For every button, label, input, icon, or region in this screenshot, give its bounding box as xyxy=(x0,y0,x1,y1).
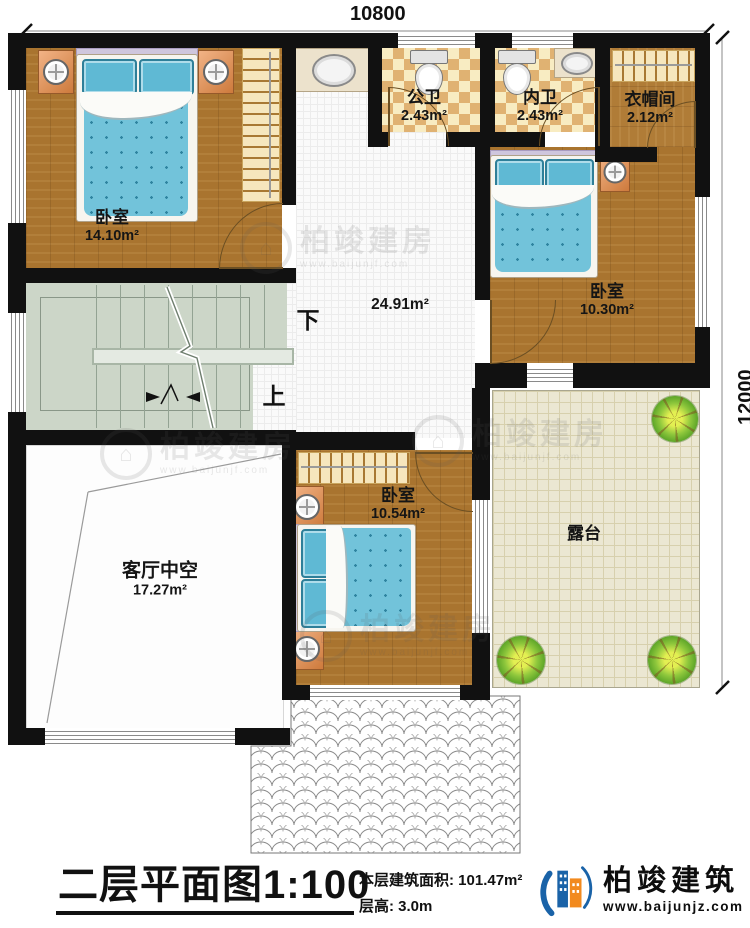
window xyxy=(8,90,26,223)
stair-handrail xyxy=(92,348,294,365)
floor-area-value: 101.47m² xyxy=(458,872,522,889)
room-area: 24.91m² xyxy=(371,296,429,314)
lamp-icon xyxy=(604,161,627,184)
window xyxy=(45,728,235,745)
window xyxy=(8,313,26,412)
sheet-title-text: 二层平面图 xyxy=(58,863,263,907)
tree-icon xyxy=(652,396,698,442)
bed-double xyxy=(292,524,414,630)
nightstand xyxy=(198,50,234,94)
stairs-down-label: 下 xyxy=(297,301,320,335)
window xyxy=(527,366,573,385)
room-name: 内卫 xyxy=(517,88,563,108)
room-area: 10.54m² xyxy=(371,505,425,522)
cloakroom-rail xyxy=(615,64,693,66)
toilet-tank-icon xyxy=(410,50,448,64)
wall xyxy=(480,33,495,147)
sheet-title: 二层平面图1:100 xyxy=(58,862,370,908)
wall xyxy=(282,33,296,205)
stair-treads-lower xyxy=(96,364,253,428)
pillow xyxy=(82,59,137,95)
room-label-bedroom1: 卧室 14.10m² xyxy=(85,208,139,244)
floor-area-stat: 本层建筑面积: 101.47m² xyxy=(359,869,522,890)
clothes-rack xyxy=(298,452,410,484)
room-area: 14.10m² xyxy=(85,227,139,244)
wall xyxy=(8,268,296,283)
room-name: 衣帽间 xyxy=(625,90,676,110)
window xyxy=(512,33,573,48)
lamp-icon xyxy=(294,636,320,662)
bed-sheet-fold xyxy=(326,526,348,628)
tree-icon xyxy=(648,636,696,684)
floor-area-label: 本层建筑面积: xyxy=(359,872,454,889)
room-label-bedroom2: 卧室 10.30m² xyxy=(580,282,634,318)
room-area: 2.12m² xyxy=(625,109,676,126)
room-area: 2.43m² xyxy=(517,107,563,124)
wall xyxy=(282,432,296,700)
stairs-up-label: 上 xyxy=(263,377,286,411)
room-label-inner-bath: 内卫 2.43m² xyxy=(517,88,563,124)
nightstand xyxy=(38,50,74,94)
room-label-bedroom3: 卧室 10.54m² xyxy=(371,486,425,522)
wall xyxy=(368,132,388,147)
room-area: 10.30m² xyxy=(580,301,634,318)
wall xyxy=(282,432,415,450)
dimension-top: 10800 xyxy=(345,3,411,26)
room-name: 公卫 xyxy=(401,88,447,108)
cloakroom-rack xyxy=(612,50,695,82)
room-label-cloakroom: 衣帽间 2.12m² xyxy=(625,90,676,126)
sink-icon xyxy=(561,52,593,75)
room-label-terrace: 露台 xyxy=(567,524,601,544)
lamp-icon xyxy=(294,494,320,520)
room-label-living-void: 客厅中空 17.27m² xyxy=(122,561,198,600)
window xyxy=(472,500,490,633)
clothes-rail xyxy=(301,466,407,468)
room-label-hall-area: 24.91m² xyxy=(371,296,429,314)
room-label-public-bath: 公卫 2.43m² xyxy=(401,88,447,124)
wall xyxy=(475,132,490,300)
brand-name: 柏竣建筑 xyxy=(603,867,739,896)
floor-plan-canvas: ⌂ 柏竣建房www.baijunjf.com ⌂ 柏竣建房www.baijunj… xyxy=(0,0,750,928)
tree-icon xyxy=(497,636,545,684)
floor-height-label: 层高: xyxy=(359,898,394,915)
room-name: 卧室 xyxy=(371,486,425,506)
brand-logo-icon xyxy=(538,861,596,919)
wall xyxy=(595,147,657,162)
title-underline xyxy=(56,911,354,915)
brand-website: www.baijunjz.com xyxy=(603,900,744,914)
brand-logo: 柏竣建筑 www.baijunjz.com xyxy=(538,861,744,919)
sheet-scale: 1:100 xyxy=(263,863,370,907)
wall xyxy=(573,363,710,388)
roof-tiles xyxy=(250,695,522,855)
window xyxy=(310,685,460,700)
stair-treads-upper xyxy=(96,285,287,349)
wardrobe-rack xyxy=(242,48,280,202)
room-area: 2.43m² xyxy=(401,107,447,124)
room-name: 卧室 xyxy=(85,208,139,228)
stair-direction-arrow xyxy=(146,392,160,402)
dimension-right: 12000 xyxy=(735,364,750,430)
window xyxy=(695,197,710,327)
lamp-icon xyxy=(203,59,229,85)
pillow xyxy=(139,59,194,95)
toilet-tank-icon xyxy=(498,50,536,64)
bed-double xyxy=(76,48,196,220)
sink-icon xyxy=(312,54,356,87)
window xyxy=(398,33,475,48)
floor-height-stat: 层高: 3.0m xyxy=(359,895,432,916)
lamp-icon xyxy=(43,59,69,85)
wall xyxy=(368,33,382,147)
wall xyxy=(475,363,527,388)
wall xyxy=(8,430,296,445)
wardrobe-rail xyxy=(269,52,271,198)
room-name: 卧室 xyxy=(580,282,634,302)
room-area: 17.27m² xyxy=(122,583,198,600)
bed-double xyxy=(490,150,596,276)
stair-direction-arrow xyxy=(186,392,200,402)
room-name: 客厅中空 xyxy=(122,561,198,583)
floor-height-value: 3.0m xyxy=(398,898,432,915)
room-name: 露台 xyxy=(567,524,601,544)
